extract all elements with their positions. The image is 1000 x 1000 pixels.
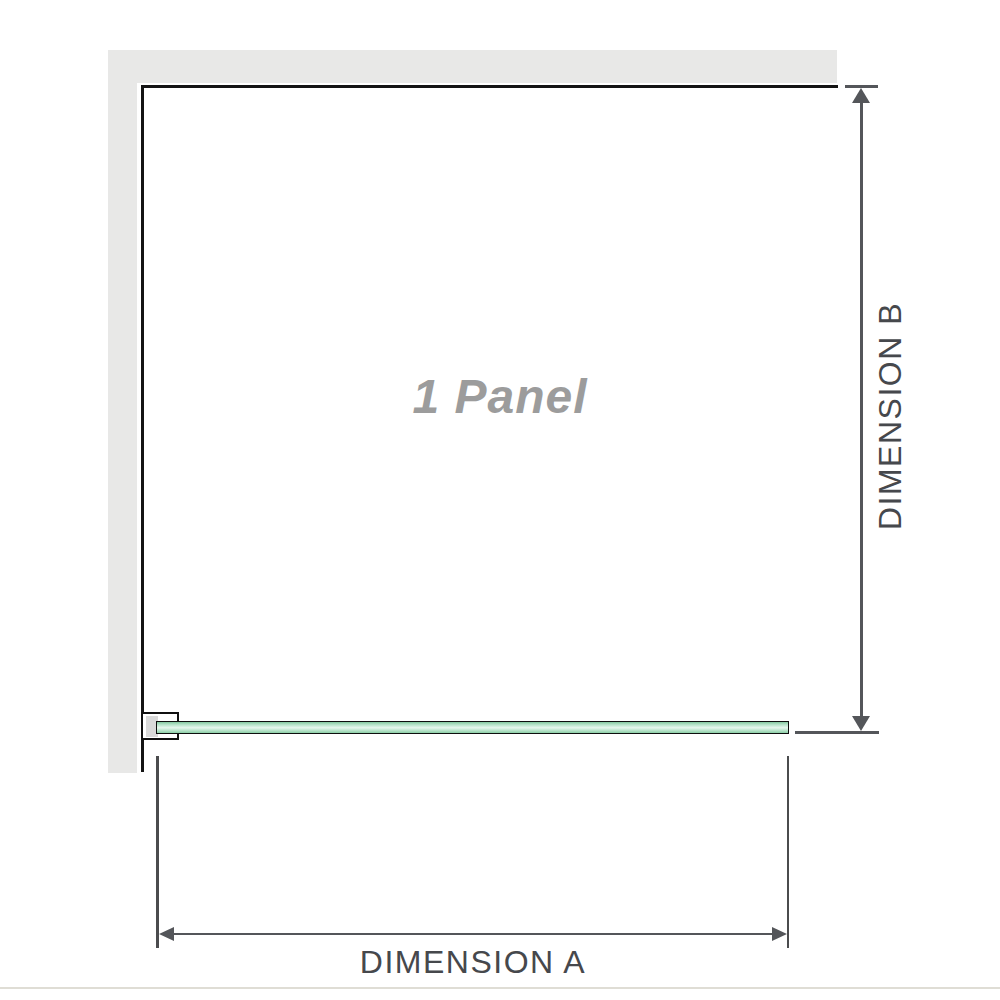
wall-top <box>108 50 837 83</box>
wall-left <box>108 50 137 773</box>
panel-count-label: 1 Panel <box>412 369 587 424</box>
dimension-b-label: DIMENSION B <box>872 302 909 530</box>
dimension-a-label: DIMENSION A <box>360 944 586 981</box>
dimension-diagram: 1 Panel DIMENSION B DIMENSION A <box>0 0 1000 1000</box>
dimension-b-bottom-tick <box>795 731 879 734</box>
bottom-divider-line <box>0 987 1000 989</box>
dimension-a-extension-line-left <box>156 756 158 948</box>
dimension-a-arrow-line <box>168 933 774 936</box>
frame-left-line <box>141 85 144 772</box>
frame-top-line <box>141 85 838 88</box>
arrowhead-down-icon <box>852 716 870 731</box>
dimension-b-arrow-line <box>860 97 863 717</box>
arrowhead-up-icon <box>852 88 870 103</box>
glass-panel-bar <box>156 721 789 734</box>
dimension-a-extension-line-right <box>787 756 789 948</box>
arrowhead-right-icon <box>772 927 787 941</box>
arrowhead-left-icon <box>159 927 174 941</box>
